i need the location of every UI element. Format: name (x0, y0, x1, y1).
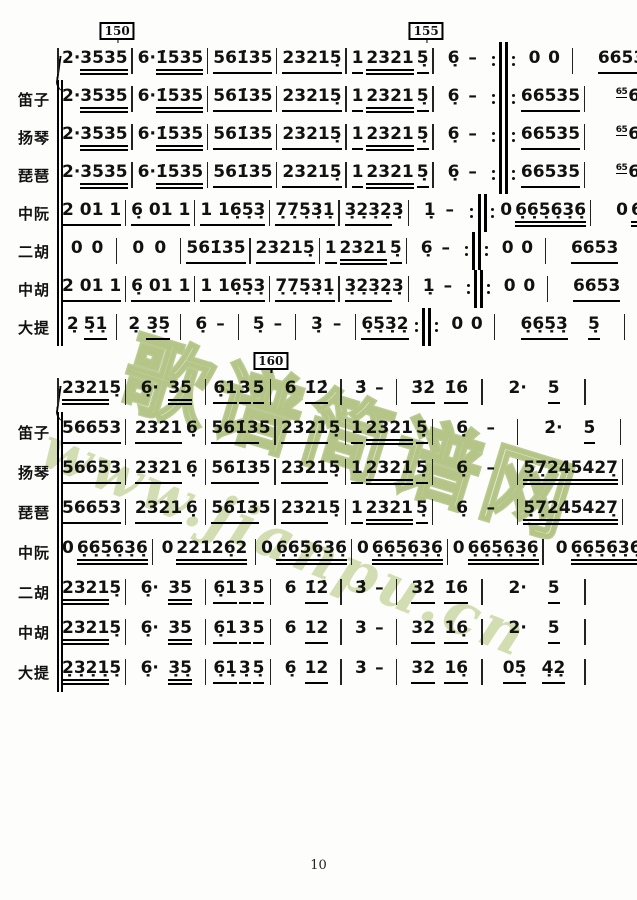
note-group: 0 (471, 315, 483, 340)
note-group: 05̣ (503, 659, 527, 684)
measure-cell: 561̇35 (208, 42, 277, 80)
note-group: 23215̣ (282, 163, 341, 188)
note-group: 5̣ (390, 239, 402, 264)
note-group: 1 1 (161, 201, 191, 226)
note-group: 1 1 (92, 201, 122, 226)
note-group: 6̣ (456, 499, 468, 524)
score-row-扬琴: 扬琴5665323216̣561̇3523215̣123215̣6̣–5̣7̣2… (8, 452, 585, 492)
note-group: 6· (138, 87, 156, 112)
measure-cell: 6̣– (434, 156, 491, 194)
note-group: 6̣5̣3̣ (230, 201, 266, 226)
note-group: – (333, 315, 342, 340)
note-group: 1 (352, 163, 364, 188)
staff-line: 5665323216̣561̇3523215̣123215̣6̣–2̇·5̇ (57, 412, 585, 452)
note-group: 2321 (62, 579, 109, 605)
note-group: 56 (62, 499, 86, 524)
note-group: 6̣ (421, 239, 433, 264)
note-group: 1̣ (424, 201, 436, 226)
note-group: 1 (352, 125, 364, 150)
note-group: 3̣ (239, 659, 251, 684)
staff-line: 0000561̇3523215̣123215̣6̣–0066535 (57, 232, 625, 270)
staff-line: 2 01 16̣ 01 11 16̣5̣3̣7̣7̣5̣3̣1̣3̣2̣3̣2̣… (57, 270, 625, 308)
note-group: 1̇2̇ (305, 379, 329, 404)
note-group: 653 (86, 419, 122, 444)
measure-cell: 561̇35 (206, 412, 275, 452)
staff-line: 23215̣6̣·356̣13561̇2̇3̇–3̇2̇1̇62·5 (57, 372, 585, 412)
note-group: 0 (451, 315, 463, 340)
measure-cell: 123215̣ (346, 452, 433, 492)
instrument-label: 琵琶 (8, 156, 57, 194)
score-page: { "page": { "number": "10" }, "watermark… (0, 0, 637, 900)
note-group: 5̣ (416, 419, 428, 444)
measure-cell: 2·5 (483, 612, 586, 652)
instrument-label: 中胡 (8, 612, 57, 652)
note-group: 3̇ (355, 379, 367, 404)
note-group: 6̣ (195, 315, 207, 340)
measure-cell: 561̇35 (206, 452, 275, 492)
repeat-thick-bars (499, 42, 508, 80)
note-group: – (468, 49, 477, 74)
instrument-label: 琵琶 (8, 492, 57, 532)
measure-cell: 2 01 1 (57, 194, 126, 232)
note-group: 0 (529, 49, 541, 74)
measure-cell: 00 (439, 308, 496, 346)
note-group: 5̣ (417, 163, 429, 188)
staff-line: 23215̣6̣·356̣13561̇2̇3̇–3̇2̇1̇62·5 (57, 572, 585, 612)
note-group: 1 (352, 49, 364, 74)
note-group: – (446, 201, 455, 226)
note-group: 5̣ (109, 659, 121, 684)
note-group: 12 (305, 659, 329, 684)
note-group: 6̣6̣5̣6̣3̣6̣ (372, 539, 443, 565)
measure-cell: 66535 (546, 232, 637, 270)
measure-cell: 2·5 (483, 572, 586, 612)
note-group: 6̣6̣5̣6̣3̣6̣ (276, 539, 347, 565)
note-group: 5 (259, 499, 271, 524)
note-group: 1̇6 (444, 379, 468, 404)
note-group: 2· (508, 619, 526, 644)
note-group: 6̣6̣5̣6̣3̣6̣ (571, 539, 637, 565)
note-group: 2321 (366, 419, 413, 445)
measure-cell: 23216̣ (126, 452, 206, 492)
note-group: 5̣7̣245427̣ (523, 499, 618, 525)
instrument-label: 扬琴 (8, 452, 57, 492)
repeat-thick-bars (478, 194, 487, 232)
note-group: 6 (285, 619, 297, 644)
note-group: 2· (508, 579, 526, 604)
staff-line: 5665323216̣561̇3523215̣123215̣6̣–5̣7̣245… (57, 492, 585, 532)
note-group: 1̇2̇ (305, 579, 329, 604)
staff-line: 2̣5̣1̣2̣3̣5̣6̣–5̣–3̣–6̣5̣3̣2̣006̣6̣5̣3̣5… (57, 308, 625, 346)
note-group: 0 (261, 539, 273, 564)
score-row-中阮: 中阮2 01 16̣ 01 11 16̣5̣3̣7̣7̣5̣3̣1̣3̣2̣3̣… (8, 194, 625, 232)
measure-cell: 6̣·35 (126, 372, 206, 412)
measure-cell: 656·1̇ (585, 118, 637, 156)
measure-cell: 2·3535 (57, 118, 133, 156)
measure-cell: 2 01 1 (57, 270, 126, 308)
measure-cell: 7̣7̣5̣3̣1̣ (270, 194, 339, 232)
repeat-thick-bars (499, 118, 508, 156)
measure-cell: 23215̣ (277, 118, 346, 156)
measure-cell: 3̇2̇1̇6 (397, 572, 483, 612)
page-number: 10 (0, 858, 637, 873)
measure-number-box: 160 (253, 352, 288, 370)
note-group: 1̇535 (156, 87, 203, 113)
score-row-大提: 大提2̣5̣1̣2̣3̣5̣6̣–5̣–3̣–6̣5̣3̣2̣006̣6̣5̣3… (8, 308, 625, 346)
note-group: 2321 (366, 125, 413, 151)
measure-cell: 23215̣ (276, 412, 346, 452)
note-group: 6̣ (186, 419, 198, 444)
measure-cell: 00 (489, 232, 546, 270)
note-group: 5 (548, 379, 560, 404)
note-group: 6̣6̣5̣6̣3̣6̣ (468, 539, 539, 565)
measure-cell: 66535 (516, 118, 585, 156)
note-group: 5̣ (329, 419, 341, 444)
note-group: 2321 (135, 459, 182, 484)
instrument-label (8, 42, 57, 80)
note-group: 5 (548, 619, 560, 644)
note-group: 2321 (366, 49, 413, 75)
note-group: 656· (616, 87, 637, 112)
note-group: 5 (259, 419, 271, 444)
note-group: 1 (351, 459, 363, 484)
note-group: 3 (355, 659, 367, 684)
repeat-thick-bars (474, 270, 483, 308)
note-group: 3̣2̣3̣2̣ (345, 277, 392, 302)
score-row-中阮: 中阮06̣6̣5̣6̣3̣6̣022126̣206̣6̣5̣6̣3̣6̣06̣6… (8, 532, 585, 572)
note-group: – (444, 277, 453, 302)
staff-line: 2·35356·1̇535561̇3523215̣123215̣6̣–66535… (57, 80, 625, 118)
staff-line: 5665323216̣561̇3523215̣123215̣6̣–5̣7̣245… (57, 452, 585, 492)
measure-cell: 3– (342, 652, 397, 692)
measure-cell: 06̣6̣5̣6̣3̣6̣ (591, 194, 637, 232)
note-group: 32 (411, 619, 435, 644)
note-group: 5̣ (416, 499, 428, 524)
measure-cell: 23215̣ (57, 612, 126, 652)
measure-cell: 123215̣ (346, 412, 433, 452)
score-row-扬琴: 扬琴2·35356·1̇535561̇3523215̣123215̣6̣–665… (8, 118, 625, 156)
measure-cell: 23215̣ (276, 492, 346, 532)
repeat-barline (464, 232, 489, 270)
measure-number-box: 150 (100, 22, 135, 40)
note-group: 1 1 (92, 277, 122, 302)
note-group: 2321 (62, 619, 109, 645)
note-group: 1 (352, 87, 364, 112)
note-group: 5̣ (416, 459, 428, 484)
note-group: 6653 (573, 277, 620, 302)
score-system-bottom: 160 23215̣6̣·356̣13561̇2̇3̇–3̇2̇1̇62·5笛子… (8, 372, 585, 692)
measure-cell: 6̣1̣3̣5̣ (206, 652, 271, 692)
note-group: – (486, 499, 495, 524)
note-group: 5̣1̣ (84, 315, 108, 340)
note-group: 3 (355, 619, 367, 644)
note-group: 6̣ (186, 499, 198, 524)
note-group: 23215̣ (256, 239, 315, 264)
measure-cell: 561̇35 (208, 118, 277, 156)
note-group: – (486, 459, 495, 484)
note-group: 32 (411, 659, 435, 684)
instrument-label: 中胡 (8, 270, 57, 308)
measure-cell: 656·1̇ (585, 156, 637, 194)
measure-cell: 00 (117, 232, 181, 270)
note-group: 3 (239, 619, 251, 644)
note-group: 35 (168, 619, 192, 645)
note-group: 22126̣2 (176, 539, 247, 565)
measure-cell: 2·3535 (57, 42, 133, 80)
repeat-thick-bars (422, 308, 431, 346)
measure-cell: 5̣– (239, 308, 296, 346)
repeat-thick-bars (499, 80, 508, 118)
note-group: 5̣ (329, 459, 341, 484)
measure-cell: 56653 (57, 412, 126, 452)
note-group: 3̇ (355, 579, 367, 604)
note-group: 2321 (366, 459, 413, 485)
note-group: 6· (138, 49, 156, 74)
note-group: 16̣ (444, 659, 468, 684)
repeat-thick-bars (499, 156, 508, 194)
note-group: 6· (138, 125, 156, 150)
grace-note: 65 (616, 87, 628, 98)
note-group: 0 (92, 239, 104, 264)
note-group: 56 (62, 459, 86, 484)
measure-cell: 123215̣ (320, 232, 407, 270)
instrument-label: 大提 (8, 652, 57, 692)
note-group: 5 (253, 619, 265, 644)
measure-cell: 6̣135 (206, 572, 271, 612)
measure-cell: 5̣7̣245427̣ (518, 492, 623, 532)
measure-cell: 23215̣ (277, 42, 346, 80)
measure-cell: 6̣– (434, 118, 491, 156)
note-group: 5̇ (584, 419, 596, 444)
note-group: 6653 (598, 49, 637, 74)
note-group: 561̇3 (211, 419, 258, 444)
repeat-barline (466, 270, 491, 308)
note-group: – (486, 419, 495, 444)
measure-cell: 7̣7̣5̣3̣1̣ (270, 270, 339, 308)
measure-cell: 3̣– (296, 308, 356, 346)
measure-cell: 123215̣ (347, 42, 434, 80)
measure-cell: 2·5 (483, 372, 586, 412)
note-group: 3̇2̇ (411, 379, 435, 404)
measure-cell: 23215̣ (251, 232, 320, 270)
measure-cell: 06̣6̣5̣6̣3̣6̣ (448, 532, 544, 572)
staff-line: 23215̣6̣·356̣1356123–3216̣2·5 (57, 612, 585, 652)
instrument-label: 扬琴 (8, 118, 57, 156)
note-group: – (274, 315, 283, 340)
note-group: 2 0 (62, 201, 92, 226)
note-group: 5 (253, 579, 265, 604)
note-group: 6̣ (456, 459, 468, 484)
measure-cell: 06̣6̣5̣6̣3̣6̣ (544, 532, 637, 572)
score-row-二胡: 二胡23215̣6̣·356̣13561̇2̇3̇–3̇2̇1̇62·5 (8, 572, 585, 612)
note-group: 0 (453, 539, 465, 564)
repeat-barline (491, 42, 516, 80)
measure-cell: 66535 (516, 80, 585, 118)
instrument-label: 二胡 (8, 572, 57, 612)
instrument-label: 大提 (8, 308, 57, 346)
measure-cell: 05̣4̣2̣ (483, 652, 586, 692)
grace-note: 65 (616, 163, 628, 174)
note-group: – (375, 619, 384, 644)
measure-cell: 66535 (516, 156, 585, 194)
note-group: – (468, 163, 477, 188)
note-group: 5̣ (417, 49, 429, 74)
note-group: 6̣6̣5̣6̣3̣6̣ (515, 201, 586, 227)
note-group: 656· (616, 125, 637, 150)
note-group: 2321 (135, 499, 182, 524)
measure-cell: 6·1̇535 (133, 118, 209, 156)
measure-cell: 6̣·3̣5̣ (126, 652, 206, 692)
measure-cell: 1 16̣5̣3̣ (195, 270, 270, 308)
measure-cell: 1̣– (409, 194, 469, 232)
note-group: 6̣6̣5̣6̣3̣6̣ (631, 201, 637, 227)
measure-cell: 6̣5̣3̣2̣ (356, 308, 413, 346)
measure-cell: 6̣ 01 1 (126, 194, 195, 232)
note-group: 0 (62, 539, 74, 564)
measure-cell: 1 16̣5̣3̣ (195, 194, 270, 232)
note-group: 2̣ (128, 315, 140, 340)
note-group: 5 (253, 379, 265, 404)
note-group: 6̣ (448, 125, 460, 150)
note-group: 1̇535 (156, 125, 203, 151)
note-group: 5 (568, 163, 580, 188)
note-group: – (468, 87, 477, 112)
note-group: 1 (351, 499, 363, 524)
measure-cell: 06̣6̣5̣6̣3̣6̣ (57, 532, 153, 572)
note-group: 0 (154, 239, 166, 264)
note-group: 0 (502, 239, 514, 264)
score-row-琵琶: 琵琶2·35356·1̇535561̇3523215̣123215̣6̣–665… (8, 156, 625, 194)
grace-note: 65 (616, 125, 628, 136)
measure-cell: 66535 (548, 270, 637, 308)
note-group: 2321 (366, 163, 413, 189)
measure-cell: 2̣5̣1̣ (57, 308, 117, 346)
note-group: 3̣5̣ (146, 315, 170, 340)
note-group: 5̣7̣245427̣ (523, 459, 618, 485)
note-group: 6̣ (448, 49, 460, 74)
note-group: 2· (62, 49, 80, 74)
measure-cell: 23215̣ (57, 572, 126, 612)
note-group: 561̇35 (213, 49, 272, 74)
measure-cell: 1̣– (409, 270, 466, 308)
measure-cell: 06̣6̣5̣6̣3̣6̣ (256, 532, 352, 572)
note-group: 0 (500, 201, 512, 226)
measure-cell: 3216̣ (397, 612, 483, 652)
note-group: 7̣7̣5̣3̣1̣ (275, 201, 334, 226)
note-group: 6̣ (456, 419, 468, 444)
note-group: 561̇35 (213, 125, 272, 150)
note-group: 2· (508, 379, 526, 404)
note-group: 561̇3 (211, 459, 258, 484)
note-group: 6̣ (285, 659, 297, 684)
note-group: 2321 (281, 499, 328, 524)
note-group: 12 (305, 619, 329, 644)
note-group: 2· (62, 163, 80, 188)
note-group: 0 (523, 277, 535, 302)
note-group: 6653 (521, 87, 568, 112)
note-group: 6̣6̣5̣3̣ (521, 315, 568, 340)
measure-cell: 022126̣2 (153, 532, 256, 572)
measure-cell: 6̣135 (206, 612, 271, 652)
note-group: 5 (568, 87, 580, 112)
note-group: 2321 (281, 419, 328, 444)
note-group: – (442, 239, 451, 264)
note-group: 5̣ (588, 315, 600, 340)
measure-cell: 656·1̇ (585, 80, 637, 118)
note-group: 1̇535 (156, 49, 203, 75)
note-group: 653 (86, 499, 122, 524)
note-group: 561̇35 (186, 239, 245, 264)
measure-cell: 3̣2̣3̣2̣3̣ (340, 270, 409, 308)
measure-cell: 6·1̇535 (133, 42, 209, 80)
note-group: 1 1 (200, 201, 230, 226)
note-group: 5̣ (109, 579, 121, 604)
note-group: – (375, 379, 384, 404)
staff-line: 2·35356·1̇535561̇3523215̣123215̣6̣–66535… (57, 118, 625, 156)
note-group: 2321 (135, 419, 182, 444)
note-group: 561̇35 (213, 87, 272, 112)
note-group: – (375, 659, 384, 684)
measure-cell: 3̇– (342, 572, 397, 612)
measure-cell: 6̣– (407, 232, 464, 270)
note-group: 656· (616, 163, 637, 188)
measure-cell: 6̣– (433, 452, 519, 492)
note-group: 6 (285, 379, 297, 404)
score-system-top: 150155 2·35356·1̇535561̇3523215̣123215̣6… (8, 42, 625, 346)
note-group: 6653 (571, 239, 618, 264)
note-group: 0 (132, 239, 144, 264)
note-group: 35 (168, 379, 192, 405)
measure-cell: 3216̣ (397, 652, 483, 692)
staff-line: 06̣6̣5̣6̣3̣6̣022126̣206̣6̣5̣6̣3̣6̣06̣6̣5… (57, 532, 637, 572)
note-group: 2̣ (67, 315, 79, 340)
note-group: 1̣ (423, 277, 435, 302)
score-row-琵琶: 琵琶5665323216̣561̇3523215̣123215̣6̣–5̣7̣2… (8, 492, 585, 532)
score-row-二胡: 二胡0000561̇3523215̣123215̣6̣–0066535 (8, 232, 625, 270)
note-group: 3̣5̣ (168, 659, 192, 685)
note-group: 3 (239, 379, 251, 404)
instrument-label (8, 372, 57, 412)
note-group: 3535 (80, 49, 127, 75)
note-group: 5 (568, 125, 580, 150)
measure-cell: 23216̣ (126, 412, 206, 452)
note-group: 3535 (80, 125, 127, 151)
measure-cell: 6̣ 01 1 (126, 270, 195, 308)
note-group: 5̣ (253, 659, 265, 684)
instrument-label: 笛子 (8, 80, 57, 118)
measure-cell: 6·1̇535 (133, 156, 209, 194)
measure-cell: 56653 (57, 492, 126, 532)
measure-cell: 6̣·35 (126, 612, 206, 652)
note-group: – (375, 579, 384, 604)
note-group: 2321 (62, 379, 109, 405)
measure-cell: 2·3535 (57, 156, 133, 194)
note-group: 2321 (366, 499, 413, 525)
note-group: 0 (548, 49, 560, 74)
measure-cell: 3̣2̣3̣2̣3̣ (340, 194, 409, 232)
note-group: 2321 (366, 87, 413, 113)
measure-cell: 2·3535 (57, 80, 133, 118)
note-group: 0 (71, 239, 83, 264)
note-group: 6̣ 0 (131, 277, 161, 302)
note-group: 6̣ (448, 163, 460, 188)
score-row-tutti: 23215̣6̣·356̣13561̇2̇3̇–3̇2̇1̇62·5 (8, 372, 585, 412)
note-group: 6̣· (141, 579, 159, 604)
measure-cell: 00 (57, 232, 117, 270)
note-group: 3535 (80, 163, 127, 189)
note-group: 6̣1 (213, 619, 237, 644)
note-group: 6̣1̣ (213, 659, 237, 684)
